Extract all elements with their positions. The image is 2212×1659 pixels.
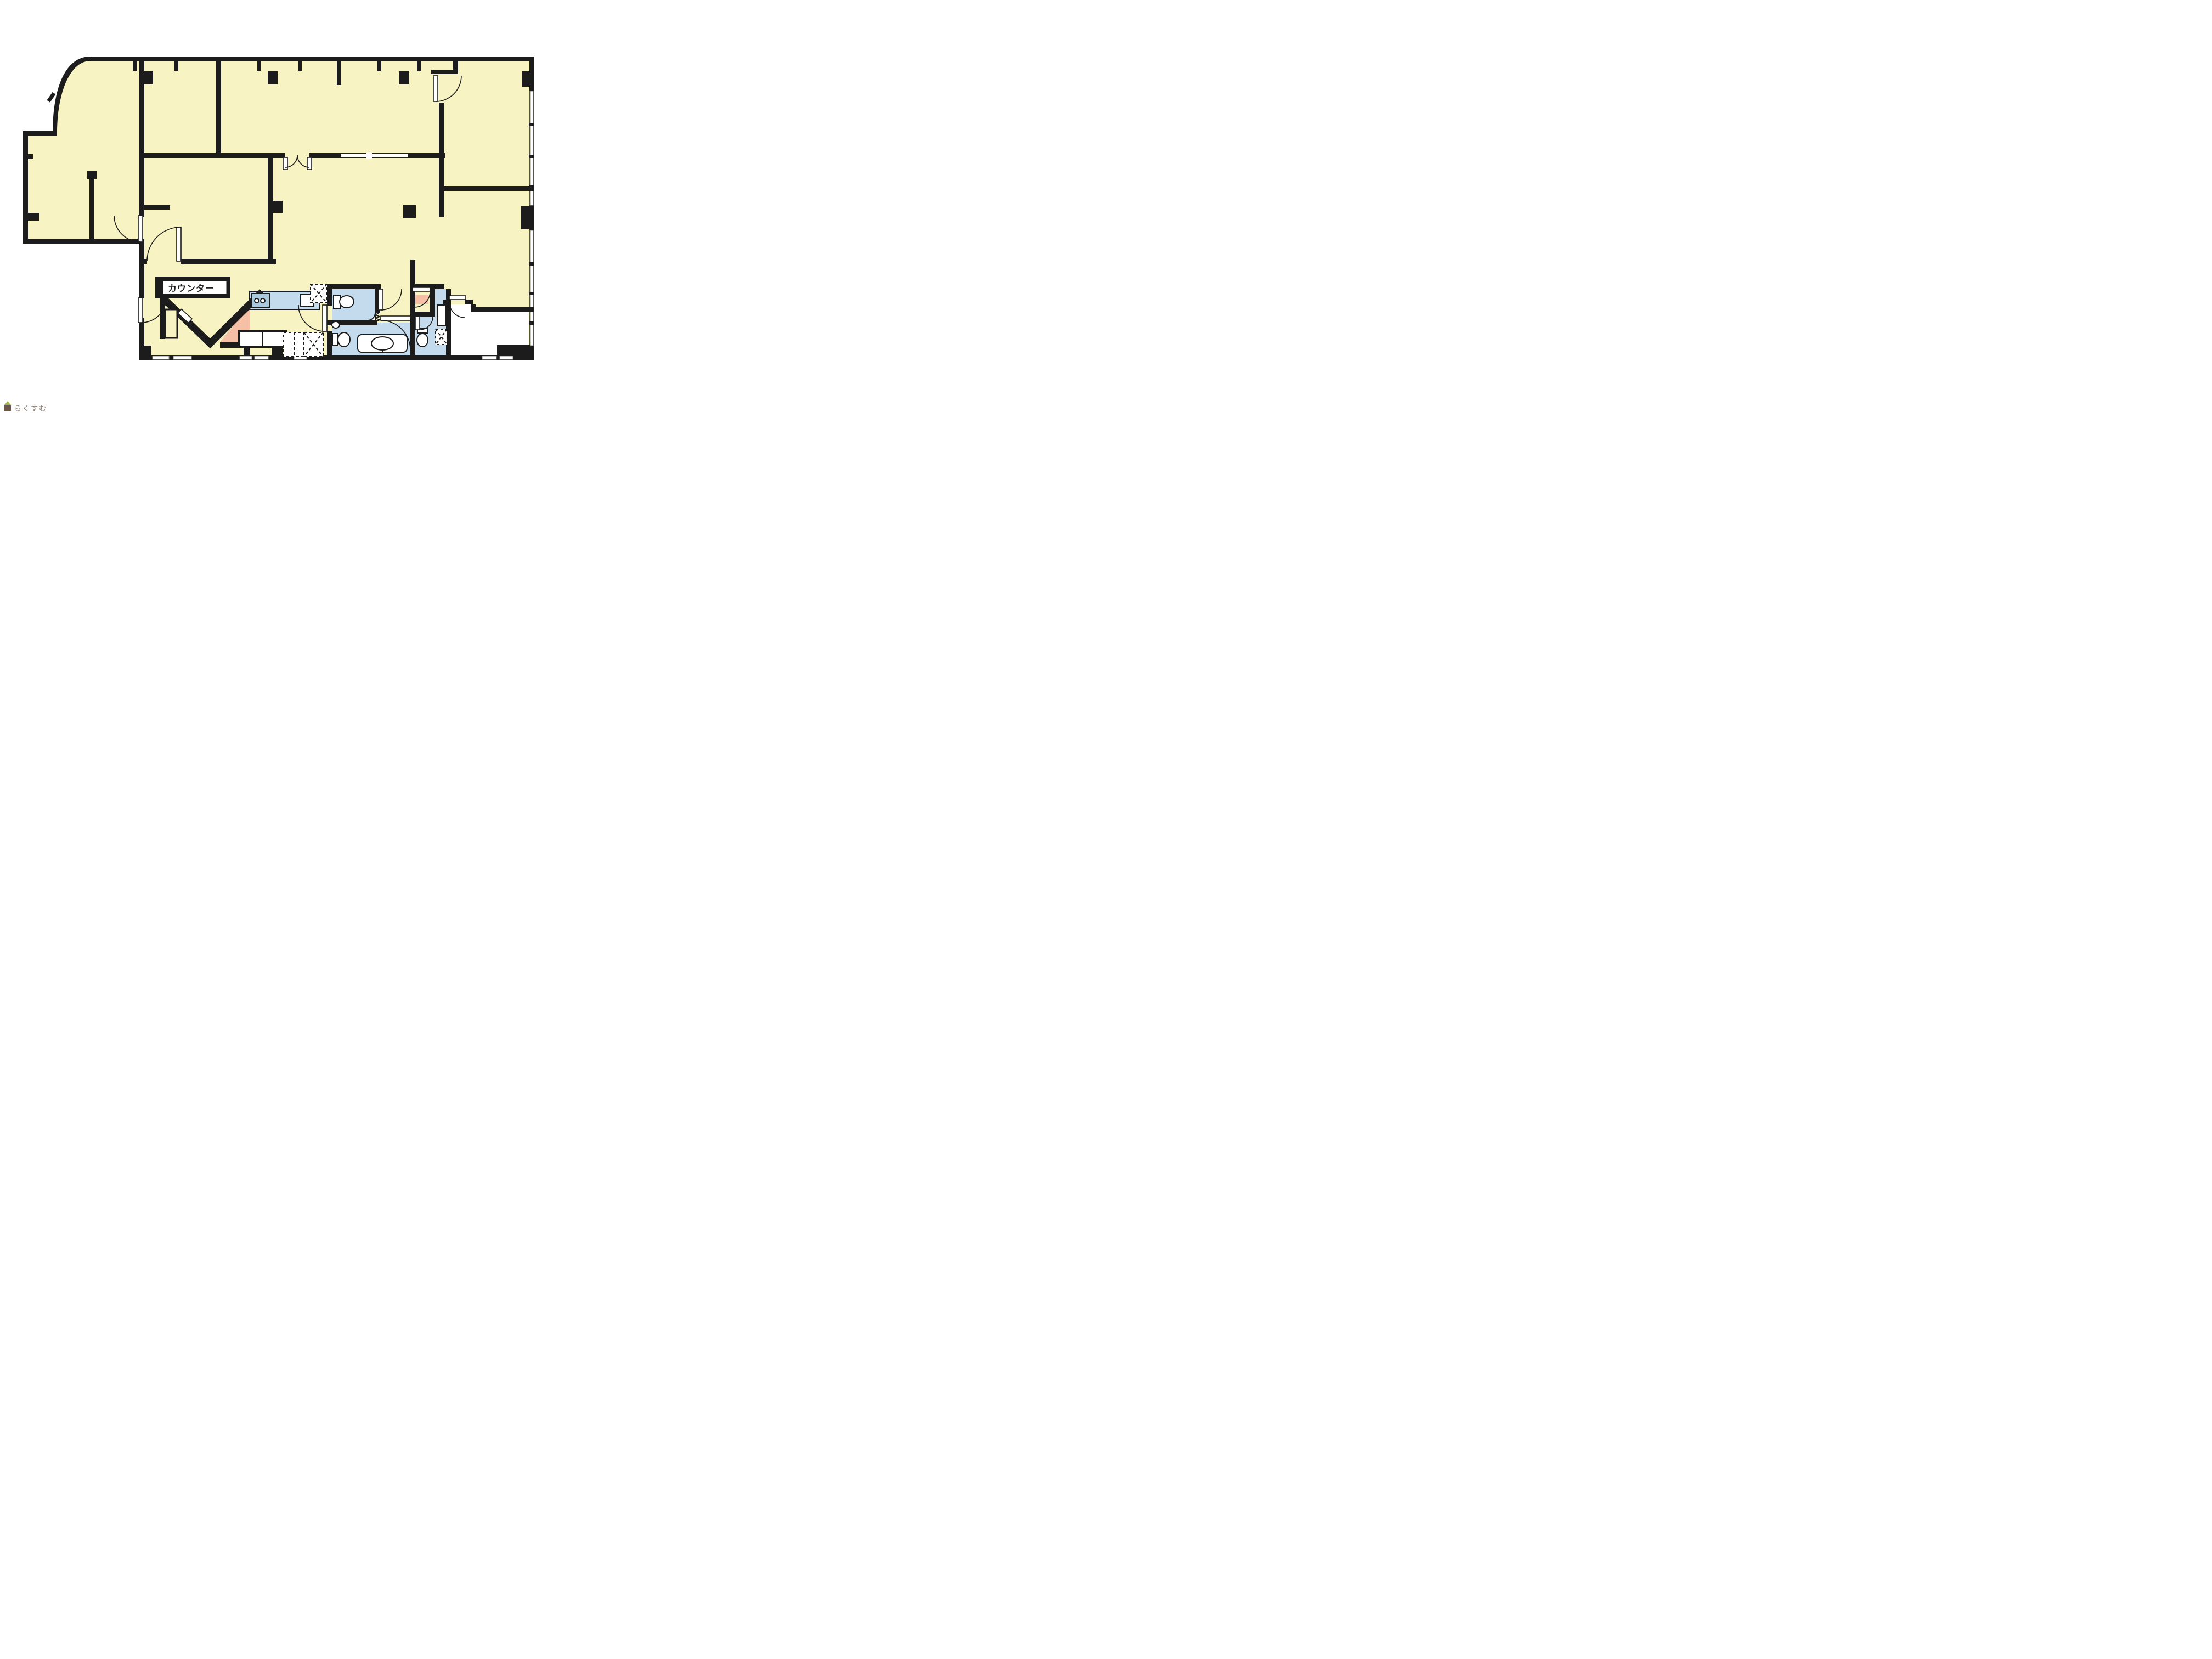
bar-inset — [165, 309, 177, 338]
westroom-corner-block — [28, 213, 39, 221]
pink-counter — [414, 295, 428, 304]
equipment-box — [284, 332, 304, 357]
wall-w7 — [439, 186, 534, 191]
wall-w4 — [268, 155, 273, 263]
vanity-sink — [358, 335, 407, 353]
westroom-stub-cap — [87, 171, 97, 179]
pillar-east-top — [522, 71, 534, 87]
ps-box — [311, 284, 327, 303]
burner-icon — [261, 298, 265, 303]
pillar-p5 — [403, 205, 416, 218]
wall-w5-b — [181, 259, 276, 264]
shower-unit — [437, 305, 445, 326]
door-leaf — [381, 316, 410, 320]
counter-label: カウンター — [168, 284, 215, 294]
pillar-p2 — [273, 201, 283, 213]
watermark-text: らくすむ — [14, 404, 47, 413]
toilet-bowl — [340, 296, 354, 308]
watermark: らくすむ — [4, 401, 47, 413]
ps-box — [436, 329, 447, 345]
burner-icon — [255, 298, 259, 303]
door-leaf — [433, 76, 438, 101]
pillar-p3 — [268, 71, 278, 84]
toilet-tank — [332, 334, 338, 346]
toilet-bowl — [338, 332, 350, 347]
pillar-bottom — [272, 348, 283, 356]
floor-plan-drawing: カウンター — [0, 0, 553, 415]
pillar-east-mid — [521, 206, 534, 229]
wall-west — [23, 131, 28, 244]
wall-w5-a — [139, 259, 147, 264]
urinal — [332, 321, 340, 328]
service-table — [239, 331, 286, 347]
door-leaf — [177, 227, 181, 261]
wall-top — [88, 57, 534, 61]
door-leaf — [415, 317, 420, 330]
wall-w3-a — [139, 153, 285, 158]
pillar-p4 — [399, 71, 409, 84]
corner-block-southeast — [497, 345, 530, 356]
westroom-stub — [89, 174, 94, 240]
wall-w6 — [439, 103, 444, 217]
watermark-house-body-icon — [4, 405, 11, 411]
alcove-horiz — [431, 70, 458, 74]
wall-w1-upper — [139, 57, 144, 217]
closet-stub — [144, 205, 170, 210]
door-leaf — [413, 287, 430, 291]
wall-westroom-south — [23, 239, 144, 244]
wall-bottom — [139, 355, 534, 360]
door-leaf — [138, 216, 143, 242]
door-leaf — [323, 305, 327, 331]
door-leaf — [138, 298, 143, 323]
watermark-house-roof-icon — [4, 401, 11, 405]
wall-w3-b — [309, 153, 341, 158]
wall-step-west — [23, 131, 57, 136]
corner-block-southwest — [142, 346, 151, 356]
toilet-bowl — [417, 334, 428, 347]
pillar-p1 — [144, 71, 153, 84]
ps-box — [304, 332, 323, 357]
window-east-lower — [530, 230, 533, 346]
wall-w2 — [216, 57, 221, 158]
door-leaf — [449, 296, 466, 300]
floor-plan-screenshot: カウンター — [0, 0, 553, 415]
west-wall-stub — [28, 154, 33, 159]
curve-tick — [47, 92, 55, 103]
door-leaf — [379, 289, 383, 310]
